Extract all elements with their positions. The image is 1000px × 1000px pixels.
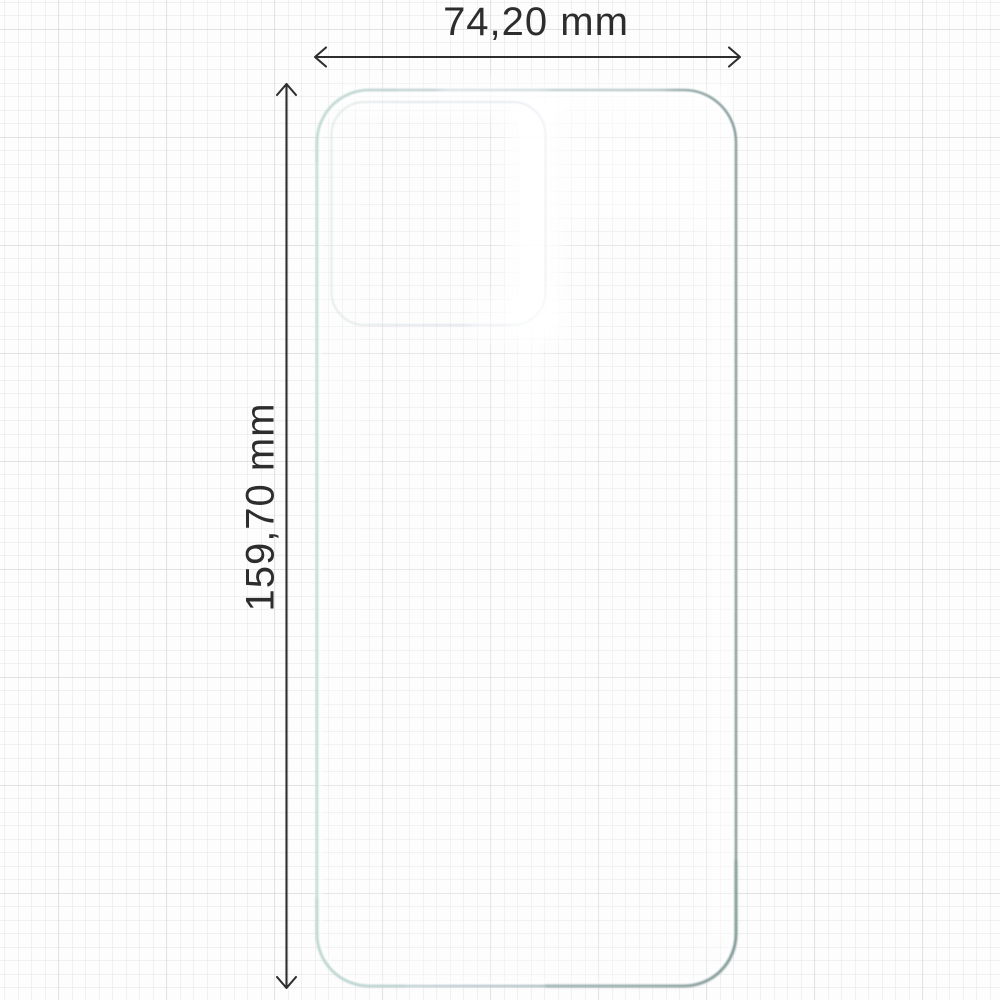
svg-text:159,70 mm: 159,70 mm [239, 402, 283, 611]
svg-text:74,20 mm: 74,20 mm [443, 0, 629, 44]
